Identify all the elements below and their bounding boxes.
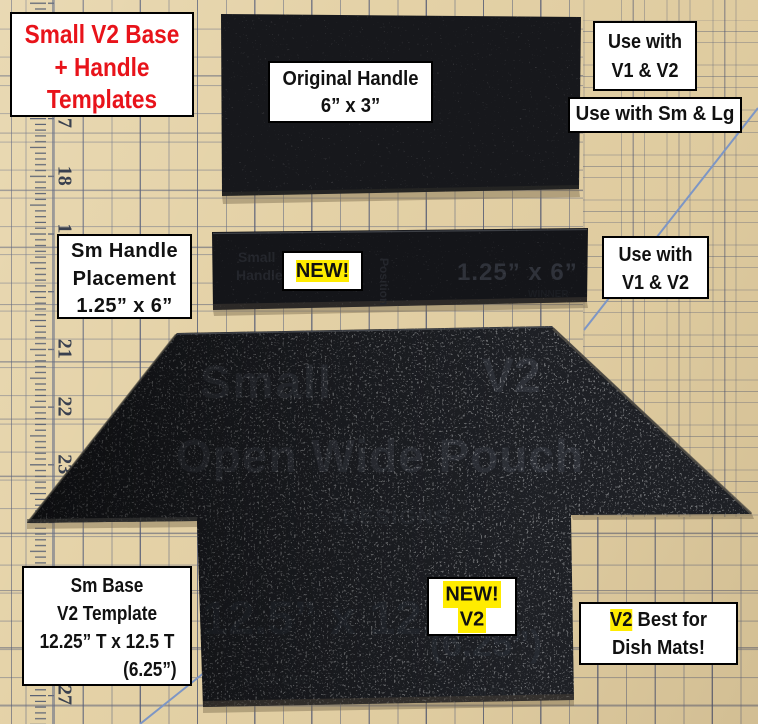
svg-text:18: 18 bbox=[53, 166, 75, 186]
svg-text:27: 27 bbox=[53, 685, 75, 705]
svg-text:22: 22 bbox=[53, 397, 75, 417]
svg-text:21: 21 bbox=[53, 339, 75, 359]
